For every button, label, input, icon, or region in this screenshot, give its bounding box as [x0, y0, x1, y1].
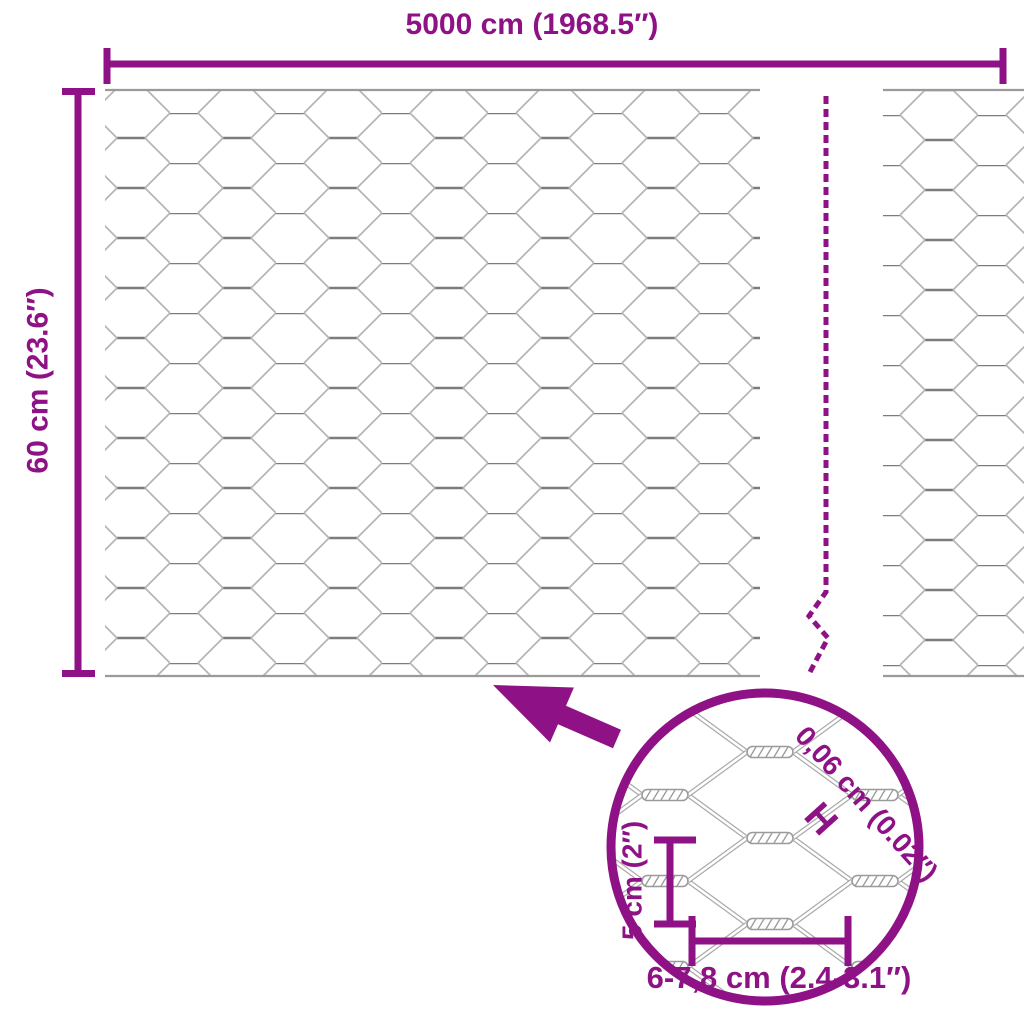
- left-dimension-line: [62, 90, 95, 675]
- magnifier-circle-icon: [611, 693, 919, 1001]
- mesh-opening-height-label: 5 cm (2″): [618, 795, 649, 965]
- top-dimension-line: [104, 48, 1006, 84]
- zoom-arrow-icon: [493, 685, 621, 748]
- diagram-graphics: [0, 0, 1024, 1024]
- mesh-opening-width-label: 6-7,8 cm (2.4-3.1″): [589, 961, 969, 995]
- mesh-panel-right: [883, 90, 1024, 676]
- roll-width-label: 5000 cm (1968.5″): [352, 8, 712, 41]
- break-dashed-line-icon: [809, 96, 828, 672]
- roll-height-label: 60 cm (23.6″): [22, 261, 55, 501]
- product-dimension-diagram: 5000 cm (1968.5″) 60 cm (23.6″) 0,06 cm …: [0, 0, 1024, 1024]
- mesh-panel: [105, 90, 760, 676]
